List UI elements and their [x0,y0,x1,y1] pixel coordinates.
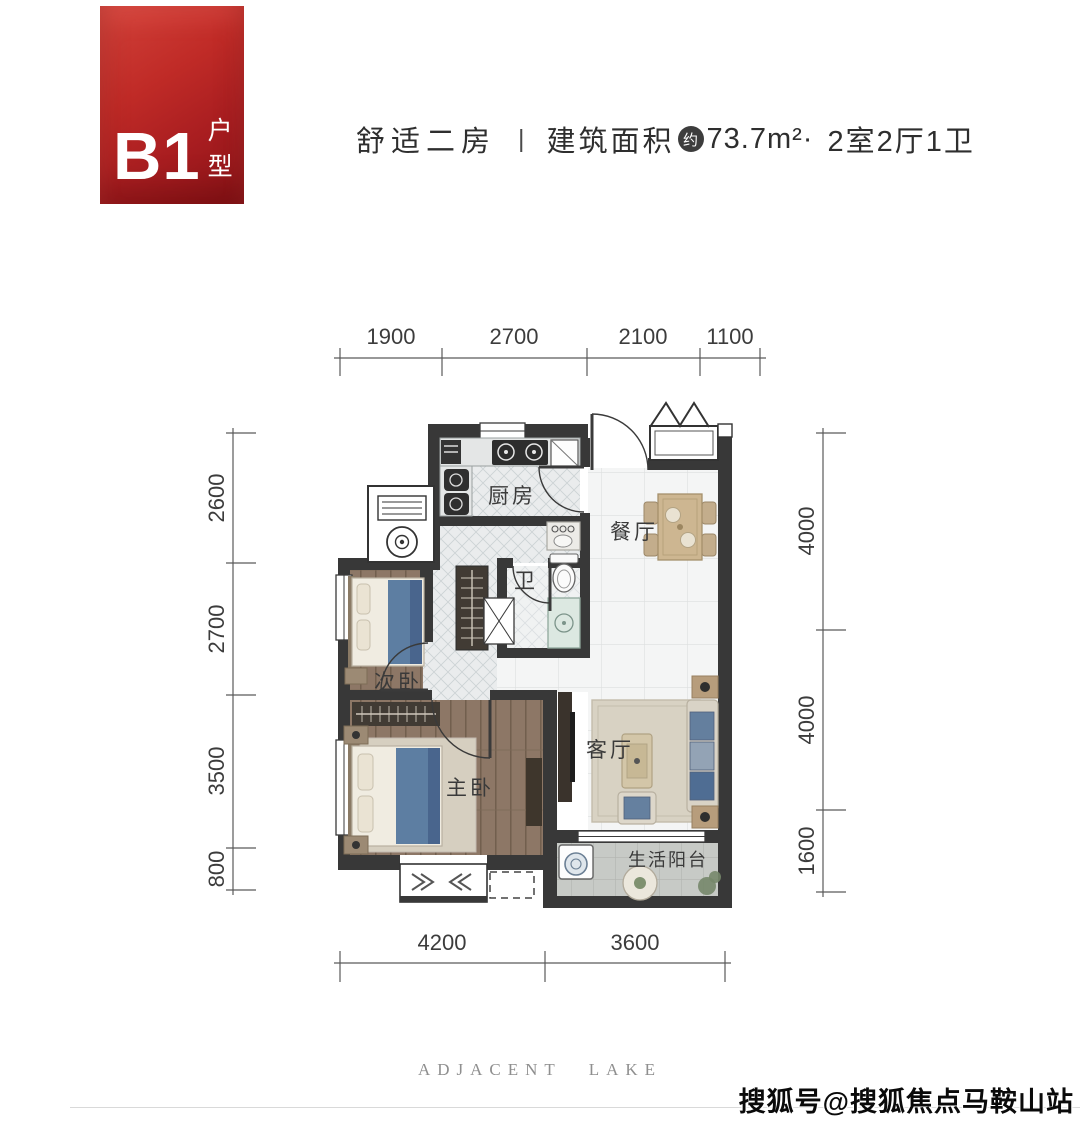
dim-top-3: 1100 [706,324,753,349]
room-label-dining: 餐厅 [610,521,658,544]
sofa [687,700,718,812]
kitchen-window [480,423,525,439]
dim-left-2: 3500 [204,747,229,796]
shower-icon [548,598,580,648]
master-dresser [526,758,542,826]
hall-closet [456,566,488,650]
tv-icon [570,712,575,782]
dim-right-2: 1600 [794,827,819,876]
floorplan-page: B1 户型 舒适二房 | 建筑面积 约 73.7m²· 2室2厅1卫 [0,0,1080,1121]
sink-icon [444,469,469,491]
dim-left: 2600 2700 3500 800 [204,428,256,895]
dim-left-3: 800 [204,851,229,888]
vanity [547,522,580,550]
room-label-balcony: 生活阳台 [628,850,708,870]
dim-bottom-0: 4200 [418,930,467,955]
room-label-kitchen: 厨房 [488,485,536,508]
floorplan-drawing: 厨房 餐厅 卫 次卧 主卧 客厅 生活阳台 1900 2700 2100 110… [0,0,1080,1121]
stove-icon [492,440,548,465]
porch-zigzag-icon [650,403,709,427]
dim-top: 1900 2700 2100 1100 [334,324,766,376]
dim-right-0: 4000 [794,507,819,556]
balcony-sliding-window [578,831,705,842]
room-label-bath: 卫 [514,570,538,593]
bay-window [400,864,487,902]
dim-left-1: 2700 [204,605,229,654]
dim-right: 4000 4000 1600 [794,428,846,897]
dim-bottom: 4200 3600 [334,930,731,982]
room-label-living: 客厅 [586,739,634,762]
duct-shaft [484,598,514,644]
watermark-text: 搜狐号@搜狐焦点马鞍山站 [739,1080,1074,1119]
dim-top-1: 2700 [490,324,539,349]
dim-left-0: 2600 [204,474,229,523]
ac-unit-dashed-box [490,872,534,898]
tv-cabinet [558,692,572,802]
entry-door [592,414,648,470]
dim-top-2: 2100 [619,324,668,349]
passage-floor [497,658,592,692]
room-label-bedroom2: 次卧 [374,671,422,694]
bedroom2-nightstand [345,668,367,684]
brand-text: ADJACENT LAKE [0,1060,1080,1080]
equipment-platform [368,486,434,562]
room-label-master: 主卧 [446,777,494,800]
armchair [618,792,656,824]
dim-top-0: 1900 [367,324,416,349]
dim-bottom-1: 3600 [611,930,660,955]
dim-right-1: 4000 [794,696,819,745]
